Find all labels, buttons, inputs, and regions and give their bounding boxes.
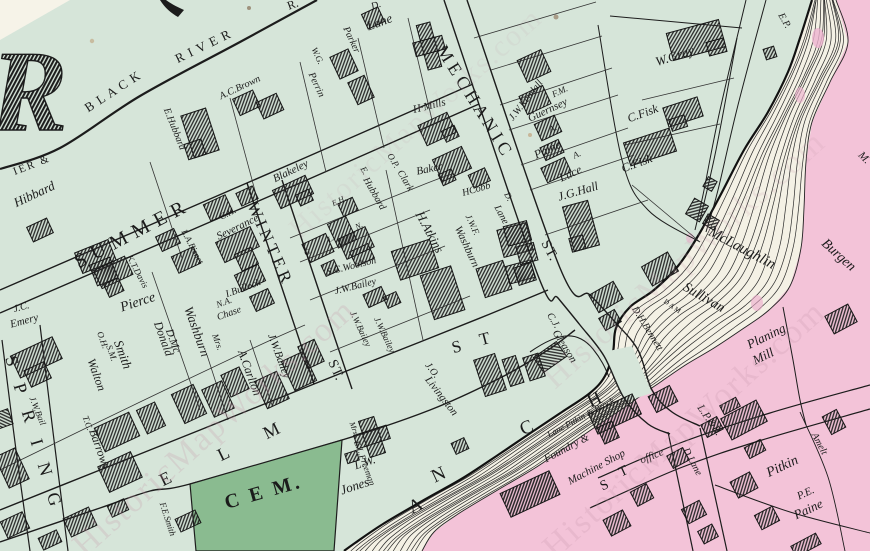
svg-text:R: R <box>0 28 67 156</box>
